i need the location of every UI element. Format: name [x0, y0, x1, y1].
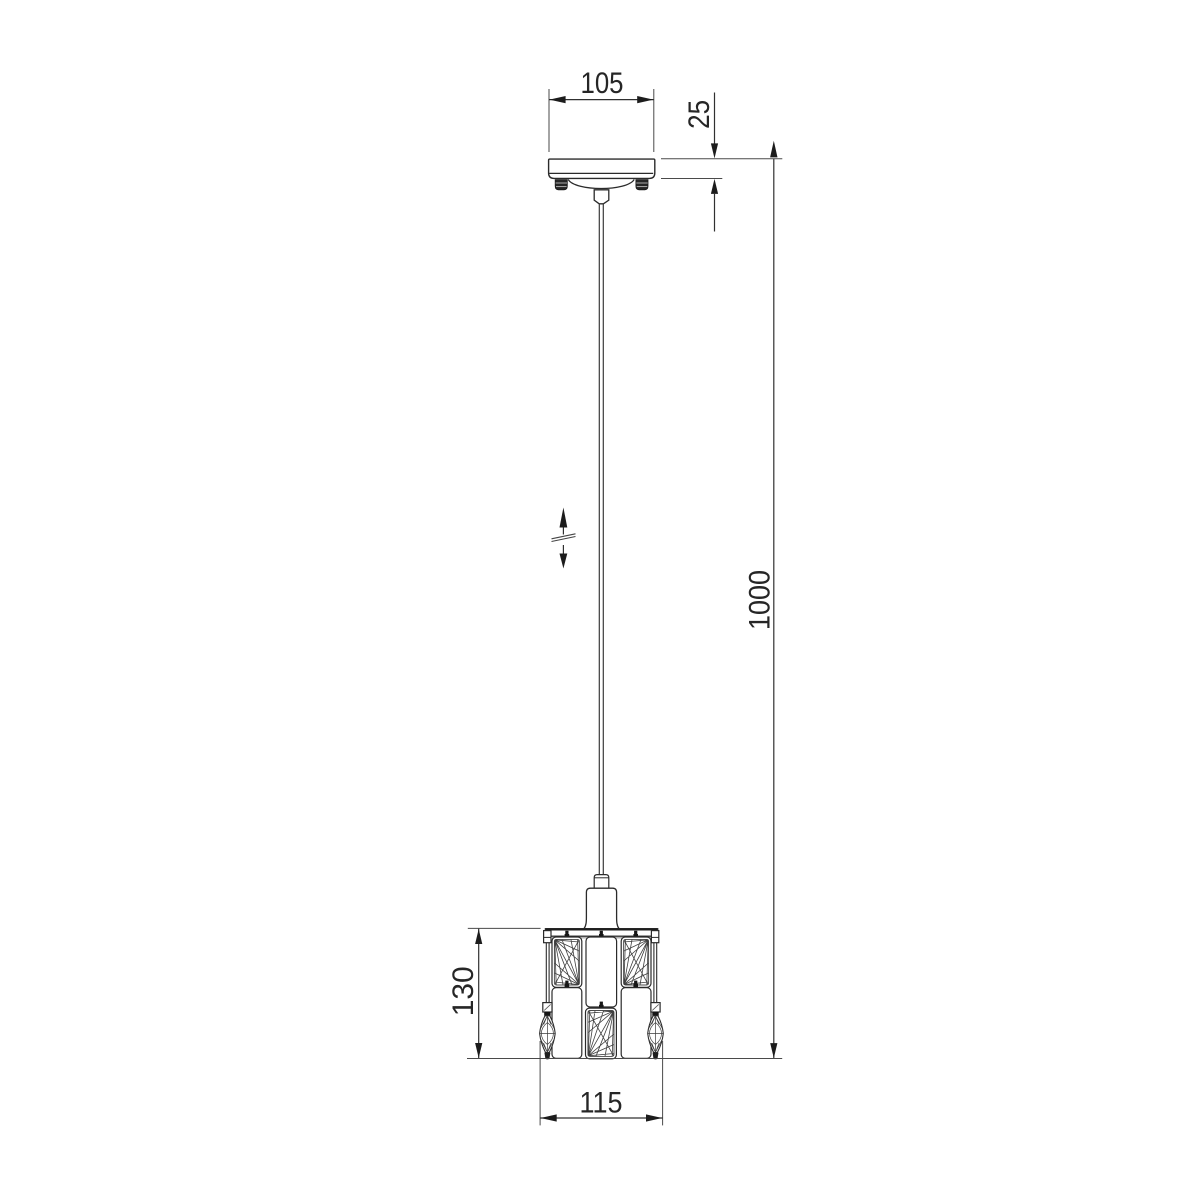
- svg-text:105: 105: [581, 67, 624, 100]
- svg-text:1000: 1000: [744, 570, 777, 630]
- svg-text:25: 25: [683, 100, 716, 129]
- svg-text:115: 115: [580, 1087, 623, 1120]
- svg-text:130: 130: [447, 966, 480, 1016]
